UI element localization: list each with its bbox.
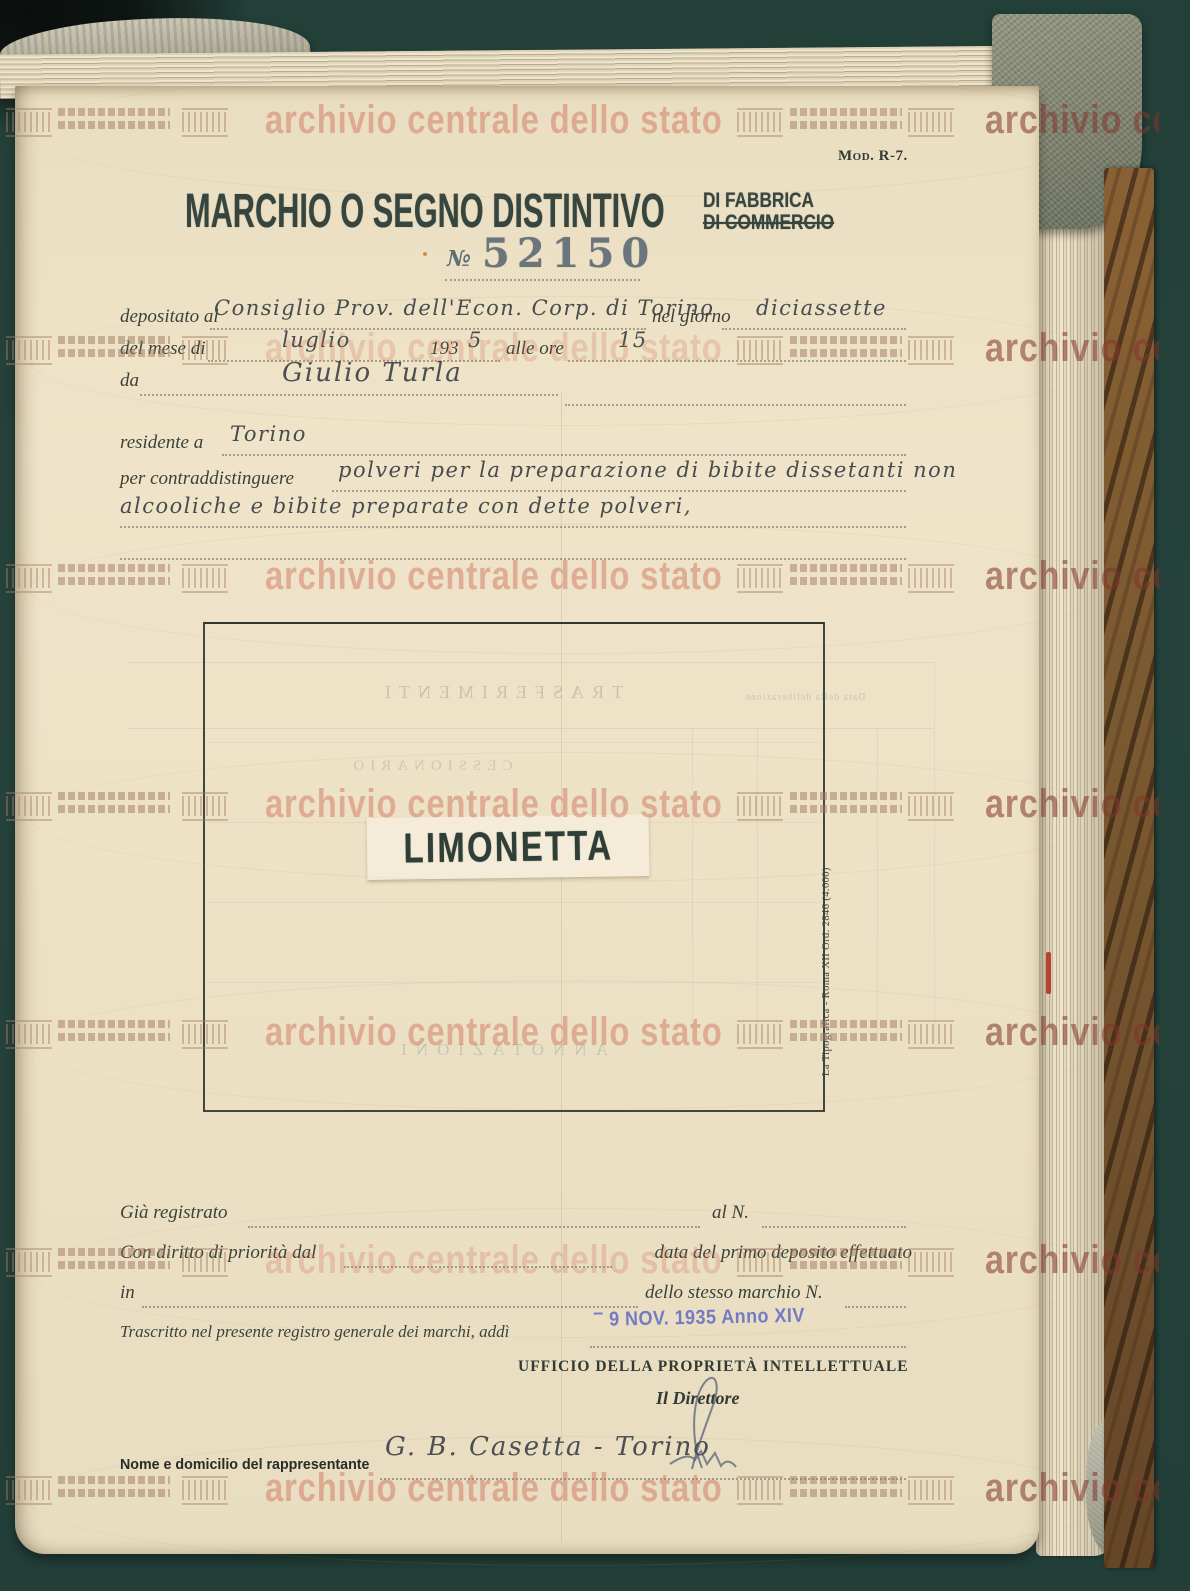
stamp-date-text: 9 NOV. 1935 Anno XIV xyxy=(609,1305,805,1331)
showthrough-table-line xyxy=(934,662,935,1042)
dotted-line xyxy=(590,1346,906,1348)
depositato-label: depositato al xyxy=(120,306,219,328)
mese-value: luglio xyxy=(282,328,351,352)
dotted-line xyxy=(140,394,558,396)
trascritto-label: Trascritto nel presente registro general… xyxy=(120,1322,509,1342)
nel-giorno-label: nel giorno xyxy=(652,306,731,328)
red-ink-mark xyxy=(1046,952,1051,994)
dotted-line xyxy=(222,454,906,456)
registration-number: 52150 xyxy=(482,230,656,277)
year-printed: 193 xyxy=(430,338,459,360)
trademark-label-chip: LIMONETTA xyxy=(367,814,650,880)
stesso-marchio-label: dello stesso marchio N. xyxy=(645,1282,823,1304)
priorita-label: Con diritto di priorità dal xyxy=(120,1242,316,1264)
dotted-line xyxy=(142,1306,638,1308)
year-digit-value: 5 xyxy=(468,328,483,352)
dotted-line xyxy=(248,1226,700,1228)
ink-speck xyxy=(423,252,427,256)
dotted-line xyxy=(380,1478,906,1480)
da-value: Giulio Turla xyxy=(282,358,463,388)
trademark-name: LIMONETTA xyxy=(403,822,613,873)
dotted-line xyxy=(568,360,906,362)
dotted-line xyxy=(762,1226,906,1228)
giorno-value: diciassette xyxy=(756,296,887,320)
dotted-line xyxy=(845,1306,906,1308)
dotted-line xyxy=(332,490,906,492)
del-mese-label: del mese di xyxy=(120,338,205,360)
alle-ore-label: alle ore xyxy=(506,338,564,360)
residente-value: Torino xyxy=(230,422,307,446)
printer-imprint: La Tipografica - Roma XII Ord. 2846 (4.0… xyxy=(821,876,841,1076)
gia-registrato-label: Già registrato xyxy=(120,1202,228,1224)
subtitle-di-commercio: DI COMMERCIO xyxy=(703,211,834,235)
dotted-line xyxy=(120,558,906,560)
stamp-dash: – xyxy=(593,1302,604,1324)
depositato-value: Consiglio Prov. dell'Econ. Corp. di Tori… xyxy=(214,296,714,320)
residente-label: residente a xyxy=(120,432,203,454)
in-label: in xyxy=(120,1282,135,1304)
ore-value: 15 xyxy=(618,328,648,352)
contraddistinguere-line2: alcooliche e bibite preparate con dette … xyxy=(120,494,692,518)
da-label: da xyxy=(120,370,139,392)
dotted-line xyxy=(445,279,640,281)
contraddistinguere-label: per contraddistinguere xyxy=(120,468,294,490)
representative-label: Nome e domicilio del rappresentante xyxy=(120,1456,369,1473)
page-edges-right xyxy=(1036,78,1112,1556)
contraddistinguere-line1: polveri per la preparazione di bibite di… xyxy=(338,458,957,482)
data-primo-deposito-label: data del primo deposito effettuato xyxy=(654,1242,912,1264)
form-model-label: Mod. R-7. xyxy=(838,148,908,165)
marbled-cover xyxy=(1104,168,1154,1568)
showthrough-table-line xyxy=(877,728,878,1042)
subtitle-di-fabbrica: DI FABBRICA xyxy=(703,189,814,213)
dotted-line xyxy=(210,328,646,330)
dotted-line xyxy=(565,404,906,406)
number-symbol: № xyxy=(447,246,471,272)
book-scan: TRASFERIMENTI CESSIONARIO Data della del… xyxy=(0,0,1190,1591)
al-n-label: al N. xyxy=(712,1202,749,1224)
dotted-line xyxy=(344,1266,612,1268)
dotted-line xyxy=(722,328,906,330)
dotted-line xyxy=(120,526,906,528)
representative-value: G. B. Casetta - Torino xyxy=(385,1432,711,1462)
date-stamp: –9 NOV. 1935 Anno XIV xyxy=(593,1305,805,1332)
